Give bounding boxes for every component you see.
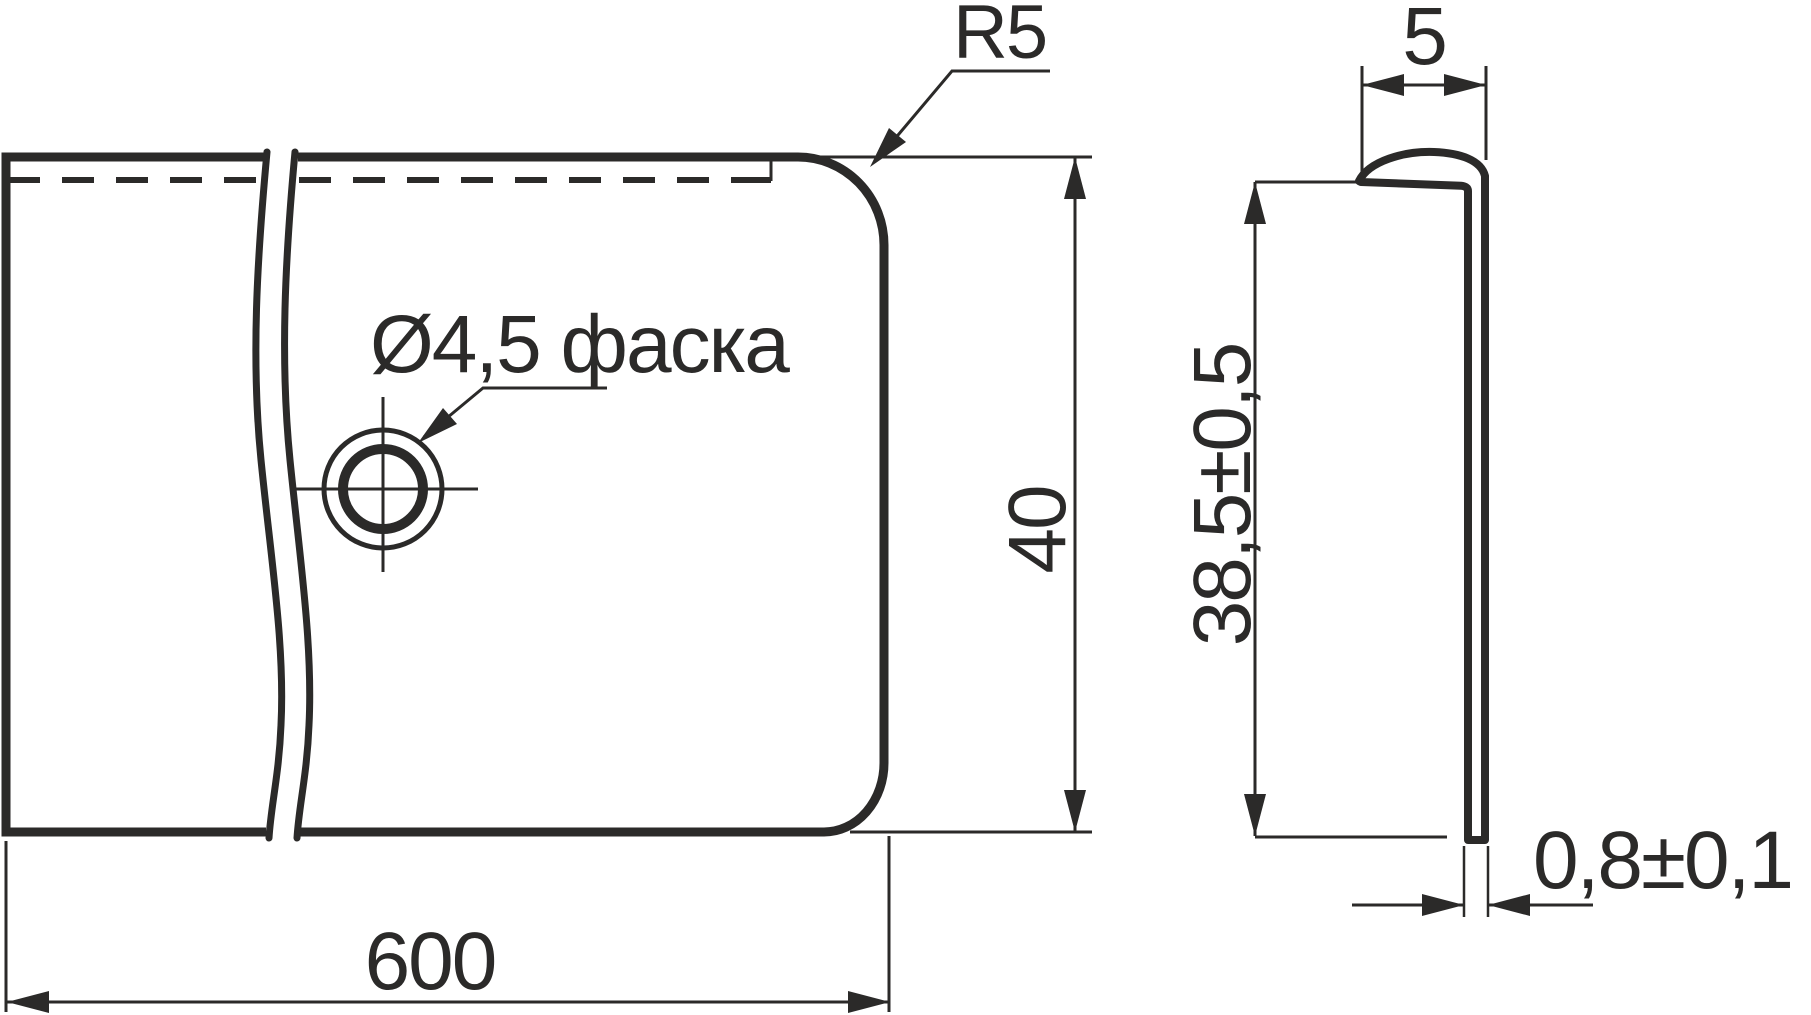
front-height-arrow-top — [1064, 157, 1086, 199]
front-outline-right — [298, 157, 884, 832]
break-line-right — [285, 152, 310, 838]
flange-arrow-left — [1362, 74, 1404, 96]
thickness-label: 0,8±0,1 — [1533, 815, 1792, 906]
corner-radius-note: R5 — [870, 0, 1050, 167]
front-outline-left — [6, 157, 266, 832]
length-arrow-left — [7, 991, 49, 1013]
dimension-side-height: 38,5±0,5 — [1177, 182, 1447, 837]
flange-arrow-right — [1444, 74, 1486, 96]
length-label: 600 — [365, 916, 496, 1007]
hole-leader-line — [424, 388, 607, 437]
dimension-length: 600 — [6, 836, 890, 1013]
flange-width-label: 5 — [1402, 0, 1446, 82]
thickness-arrow-right — [1488, 894, 1530, 916]
side-height-label: 38,5±0,5 — [1177, 344, 1268, 647]
length-arrow-right — [848, 991, 890, 1013]
dimension-flange-width: 5 — [1362, 0, 1486, 172]
drawing-canvas: Ø4,5 фаска R5 600 40 5 — [0, 0, 1811, 1015]
dimension-thickness: 0,8±0,1 — [1352, 815, 1792, 917]
technical-drawing: Ø4,5 фаска R5 600 40 5 — [0, 0, 1811, 1015]
front-height-arrow-bottom — [1064, 790, 1086, 832]
side-height-arrow-top — [1244, 182, 1266, 224]
profile-section — [1359, 152, 1485, 840]
side-height-arrow-bottom — [1244, 794, 1266, 836]
radius-leader-line — [877, 71, 1050, 160]
thickness-arrow-left — [1422, 894, 1464, 916]
corner-radius-label: R5 — [953, 0, 1046, 75]
hole-note: Ø4,5 фаска — [370, 299, 790, 443]
front-view — [6, 152, 884, 838]
break-line-left — [256, 152, 282, 838]
side-view — [1359, 152, 1485, 840]
dimension-front-height: 40 — [790, 157, 1092, 832]
hole-note-label: Ø4,5 фаска — [370, 299, 790, 390]
front-height-label: 40 — [992, 486, 1083, 573]
